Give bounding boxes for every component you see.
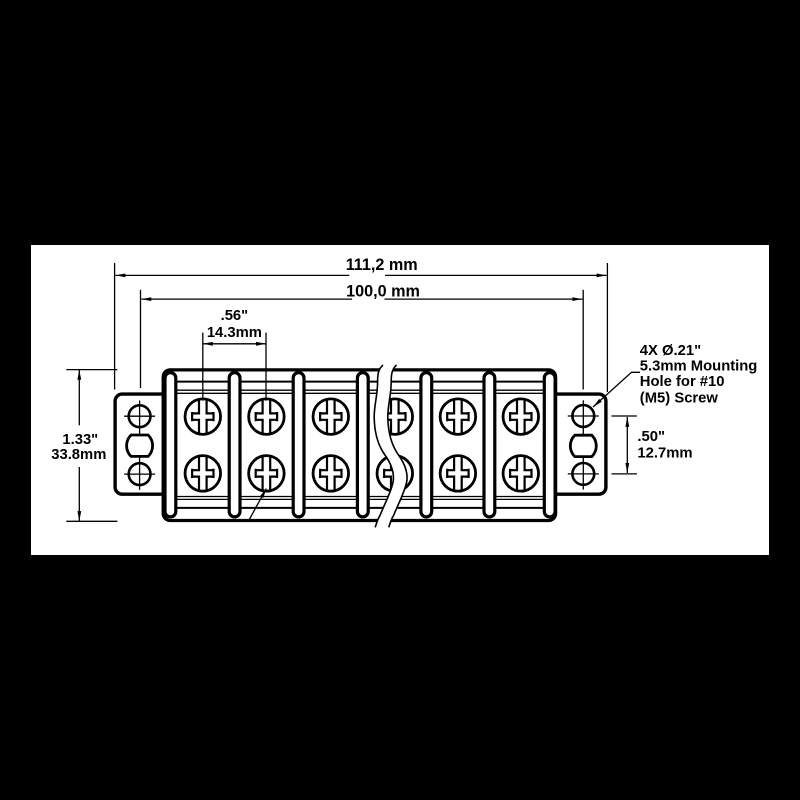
svg-text:100,0 mm: 100,0 mm: [346, 282, 420, 300]
svg-text:111,2 mm: 111,2 mm: [346, 256, 418, 274]
svg-text:4X Ø.21": 4X Ø.21": [640, 343, 701, 359]
svg-text:1.33": 1.33": [62, 432, 98, 448]
svg-text:Hole for #10: Hole for #10: [640, 374, 725, 390]
svg-text:12.7mm: 12.7mm: [637, 445, 692, 461]
svg-text:.56": .56": [221, 308, 249, 324]
svg-text:(M5) Screw: (M5) Screw: [640, 391, 719, 407]
svg-text:.50": .50": [637, 429, 665, 445]
svg-text:33.8mm: 33.8mm: [51, 447, 106, 463]
svg-text:14.3mm: 14.3mm: [207, 325, 262, 341]
svg-text:5.3mm Mounting: 5.3mm Mounting: [640, 359, 758, 375]
